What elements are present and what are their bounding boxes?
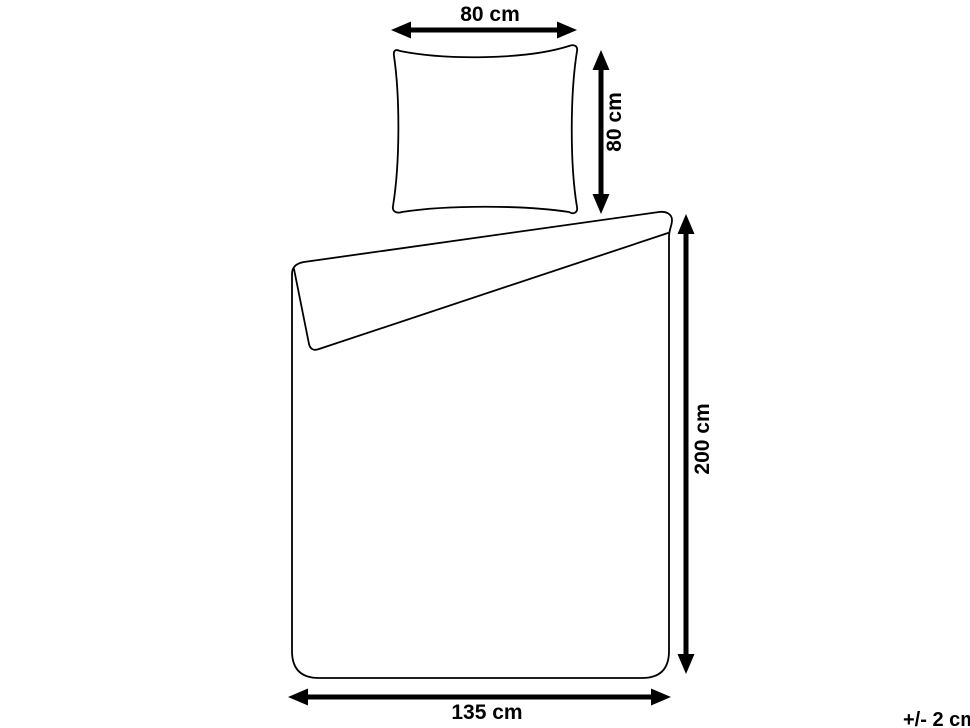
duvet-outline — [292, 212, 672, 678]
duvet-fold-line — [294, 233, 668, 350]
pillow-height-label: 80 cm — [603, 92, 626, 152]
pillow-outline — [393, 45, 577, 213]
pillow-width-arrowhead-right-icon — [557, 22, 577, 39]
pillow-height-arrowhead-top-icon — [593, 50, 610, 70]
tolerance-note: +/- 2 cm — [903, 709, 970, 728]
duvet-height-label: 200 cm — [691, 403, 714, 474]
bedding-dimensions-svg: 80 cm 80 cm 200 cm 135 cm +/- 2 cm — [0, 0, 970, 728]
duvet-width-label: 135 cm — [451, 701, 522, 724]
pillow-width-arrowhead-left-icon — [391, 22, 411, 39]
pillow-height-arrowhead-bottom-icon — [593, 194, 610, 214]
pillow-width-arrow: 80 cm — [391, 3, 577, 39]
pillow-height-arrow: 80 cm — [593, 50, 627, 214]
duvet-height-arrowhead-bottom-icon — [678, 654, 695, 674]
duvet-width-arrowhead-right-icon — [651, 689, 671, 706]
duvet-height-arrow: 200 cm — [678, 214, 715, 674]
duvet-width-arrowhead-left-icon — [288, 689, 308, 706]
duvet-width-arrow: 135 cm — [288, 689, 671, 725]
dimensions-diagram: 80 cm 80 cm 200 cm 135 cm +/- 2 cm — [0, 0, 970, 728]
duvet-height-arrowhead-top-icon — [678, 214, 695, 234]
pillow-width-label: 80 cm — [460, 3, 520, 26]
